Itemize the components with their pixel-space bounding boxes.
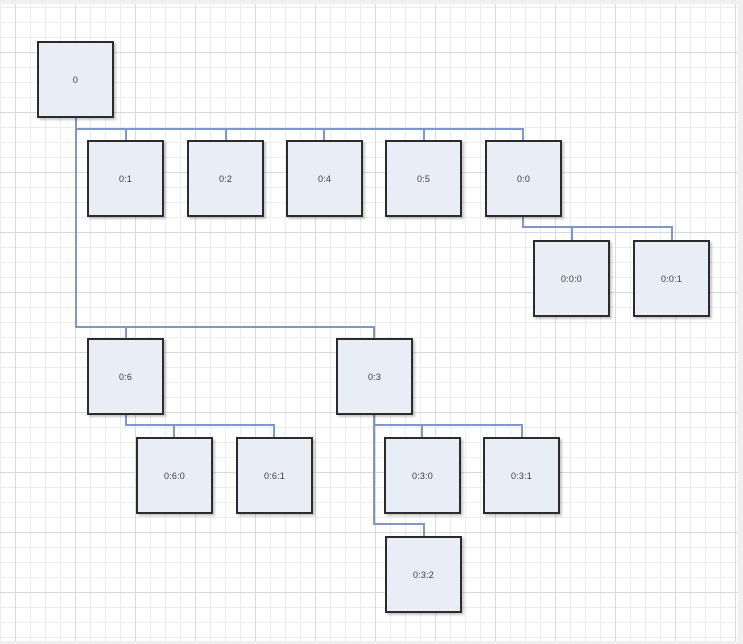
diagram-stage: 00:10:20:40:50:00:0:00:0:10:60:30:6:00:6… xyxy=(0,0,743,644)
tree-node-0-3-1[interactable]: 0:3:1 xyxy=(483,437,560,514)
tree-node-label: 0:3:1 xyxy=(511,471,532,481)
tree-node-0-5[interactable]: 0:5 xyxy=(385,140,462,217)
tree-node-label: 0:3 xyxy=(368,372,381,382)
connector-rail-0-0-children[interactable] xyxy=(522,226,673,228)
connector-rail-0-6-children[interactable] xyxy=(273,424,275,438)
connector-trunk-0-to-row3[interactable] xyxy=(75,117,77,328)
tree-node-label: 0:3:2 xyxy=(413,570,434,580)
connector-rail-0-3-2[interactable] xyxy=(373,523,425,525)
tree-node-0-3[interactable]: 0:3 xyxy=(336,338,413,415)
tree-node-0-3-2[interactable]: 0:3:2 xyxy=(385,536,462,613)
connector-rail-0-3-2[interactable] xyxy=(423,523,425,537)
tree-node-0-1[interactable]: 0:1 xyxy=(87,140,164,217)
connector-rail-0-0-children[interactable] xyxy=(671,226,673,241)
tree-node-label: 0:5 xyxy=(417,174,430,184)
tree-diagram: 00:10:20:40:50:00:0:00:0:10:60:30:6:00:6… xyxy=(0,0,743,644)
tree-node-label: 0 xyxy=(73,75,78,85)
tree-node-0-4[interactable]: 0:4 xyxy=(286,140,363,217)
connector-rail-0-3-2[interactable] xyxy=(373,424,375,525)
tree-node-label: 0:6:1 xyxy=(264,471,285,481)
tree-node-0-0[interactable]: 0:0 xyxy=(485,140,562,217)
connector-rail-0-3-children[interactable] xyxy=(373,424,523,426)
tree-node-label: 0:6 xyxy=(119,372,132,382)
tree-node-label: 0:0 xyxy=(517,174,530,184)
connector-stub-0-3-0[interactable] xyxy=(421,424,423,438)
tree-node-label: 0:6:0 xyxy=(164,471,185,481)
tree-node-label: 0:2 xyxy=(219,174,232,184)
tree-node-0-0-0[interactable]: 0:0:0 xyxy=(533,240,610,317)
tree-node-label: 0:3:0 xyxy=(412,471,433,481)
tree-node-label: 0:0:0 xyxy=(561,274,582,284)
connector-rail-0-children[interactable] xyxy=(75,128,524,130)
tree-node-label: 0:4 xyxy=(318,174,331,184)
connector-stub-0-6-0[interactable] xyxy=(173,424,175,438)
tree-node-0-2[interactable]: 0:2 xyxy=(187,140,264,217)
tree-node-0-6[interactable]: 0:6 xyxy=(87,338,164,415)
tree-node-0[interactable]: 0 xyxy=(37,41,114,118)
tree-node-0-6-0[interactable]: 0:6:0 xyxy=(136,437,213,514)
connector-rail-0-3-children[interactable] xyxy=(521,424,523,438)
connector-stub-0-0-0[interactable] xyxy=(571,226,573,241)
tree-node-label: 0:0:1 xyxy=(661,274,682,284)
tree-node-0-3-0[interactable]: 0:3:0 xyxy=(384,437,461,514)
connector-rail-0-row3[interactable] xyxy=(75,326,375,328)
connector-rail-0-6-children[interactable] xyxy=(125,424,275,426)
tree-node-0-0-1[interactable]: 0:0:1 xyxy=(633,240,710,317)
tree-node-0-6-1[interactable]: 0:6:1 xyxy=(236,437,313,514)
tree-node-label: 0:1 xyxy=(119,174,132,184)
